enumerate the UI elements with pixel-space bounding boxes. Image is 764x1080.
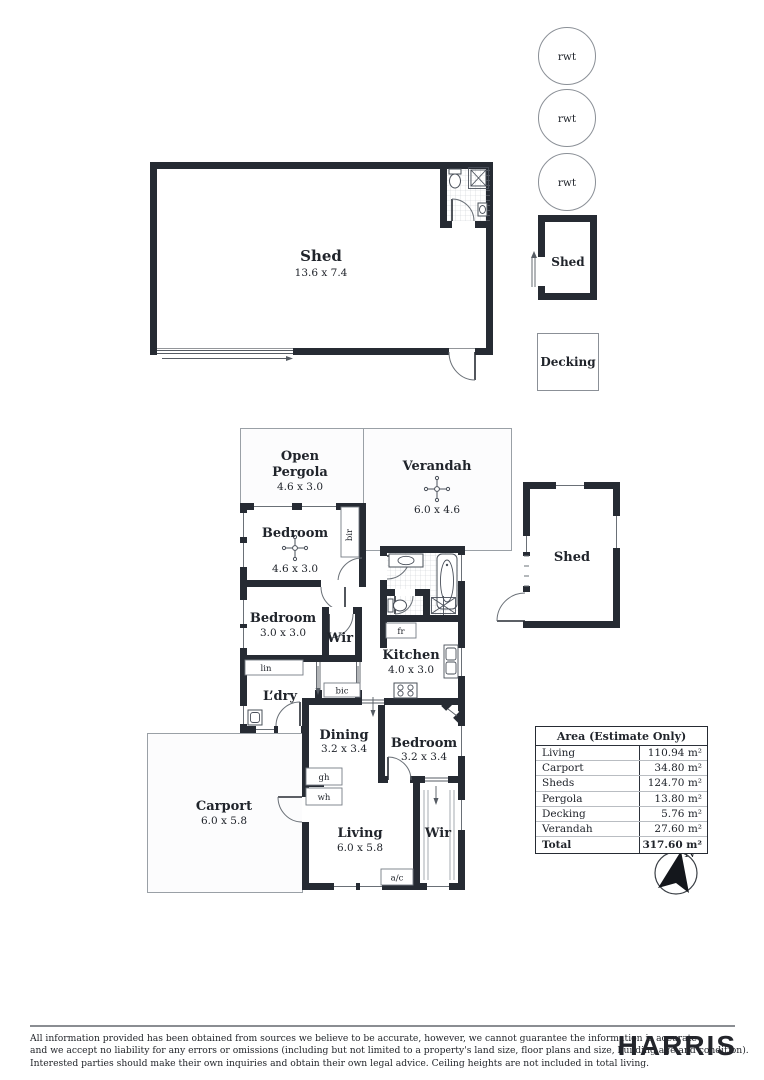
wh-label: wh <box>318 793 331 803</box>
bic-label: bic <box>336 687 349 697</box>
large-shed-dims: 13.6 x 7.4 <box>295 267 348 279</box>
rainwater-tanks: rwt rwt rwt <box>539 28 596 211</box>
fr-label: fr <box>397 627 405 637</box>
decking-label: Decking <box>540 355 596 369</box>
verandah-label: Verandah <box>402 459 472 474</box>
living-label: Living <box>337 826 382 841</box>
area-table-header: Area (Estimate Only) <box>536 727 707 746</box>
side-shed-label: Shed <box>551 255 585 269</box>
pergola-label-2: Pergola <box>272 465 328 480</box>
rwt-label-1: rwt <box>558 51 577 63</box>
decking: Decking <box>538 334 599 391</box>
large-shed-label: Shed <box>300 247 342 265</box>
living-dims: 6.0 x 5.8 <box>337 842 383 854</box>
laundry-label: L’dry <box>263 689 297 704</box>
rear-shed-label: Shed <box>554 550 590 565</box>
area-table: Area (Estimate Only) Living110.94 m² Car… <box>535 726 708 854</box>
table-row: Living110.94 m² <box>536 746 707 761</box>
bedroom2-dims: 3.0 x 3.0 <box>260 627 306 639</box>
dining-dims: 3.2 x 3.4 <box>321 743 367 755</box>
bedroom3-dims: 3.2 x 3.4 <box>401 751 447 763</box>
table-row: Pergola13.80 m² <box>536 792 707 807</box>
pergola-dims: 4.6 x 3.0 <box>277 481 323 493</box>
verandah-dims: 6.0 x 4.6 <box>414 504 460 516</box>
floor-plan: rwt rwt rwt Shed 13.6 x 7.4 <box>0 0 764 1080</box>
harris-logo: HARRIS <box>618 1030 737 1062</box>
laundry-tub <box>248 710 262 725</box>
floor-plan-page: rwt rwt rwt Shed 13.6 x 7.4 <box>0 0 764 1080</box>
wir2-label: Wir <box>424 826 451 841</box>
disclaimer-line-1: All information provided has been obtain… <box>30 1033 605 1045</box>
lin-cupboard <box>245 660 303 675</box>
side-shed: Shed <box>531 219 594 297</box>
ac-label: a/c <box>391 874 404 884</box>
table-row: Carport34.80 m² <box>536 761 707 776</box>
carport-label: Carport <box>196 799 252 814</box>
disclaimer-line-2: and we accept no liability for any error… <box>30 1045 605 1057</box>
kitchen-label: Kitchen <box>382 648 440 663</box>
large-shed: Shed 13.6 x 7.4 <box>154 165 494 380</box>
disclaimer: All information provided has been obtain… <box>30 1033 605 1070</box>
dining-label: Dining <box>319 728 368 743</box>
carport-dims: 6.0 x 5.8 <box>201 815 247 827</box>
bedroom1-dims: 4.6 x 3.0 <box>272 563 318 575</box>
lin-label: lin <box>261 664 272 674</box>
gh-label: gh <box>319 773 330 783</box>
kitchen-dims: 4.0 x 3.0 <box>388 664 434 676</box>
rwt-label-2: rwt <box>558 113 577 125</box>
table-row: Decking5.76 m² <box>536 807 707 822</box>
footer-rule <box>30 1025 735 1027</box>
rwt-label-3: rwt <box>558 177 577 189</box>
bir-label: bir <box>345 528 355 541</box>
wir1-label: Wir <box>326 631 353 646</box>
table-row-total: Total317.60 m² <box>536 837 707 853</box>
table-row: Verandah27.60 m² <box>536 822 707 837</box>
pergola-label-1: Open <box>281 449 320 464</box>
disclaimer-line-3: Interested parties should make their own… <box>30 1058 605 1070</box>
bedroom2-label: Bedroom <box>250 611 317 626</box>
table-row: Sheds124.70 m² <box>536 776 707 791</box>
rear-shed: Shed <box>497 482 620 625</box>
bedroom3-label: Bedroom <box>391 736 458 751</box>
bedroom1-label: Bedroom <box>262 526 329 541</box>
